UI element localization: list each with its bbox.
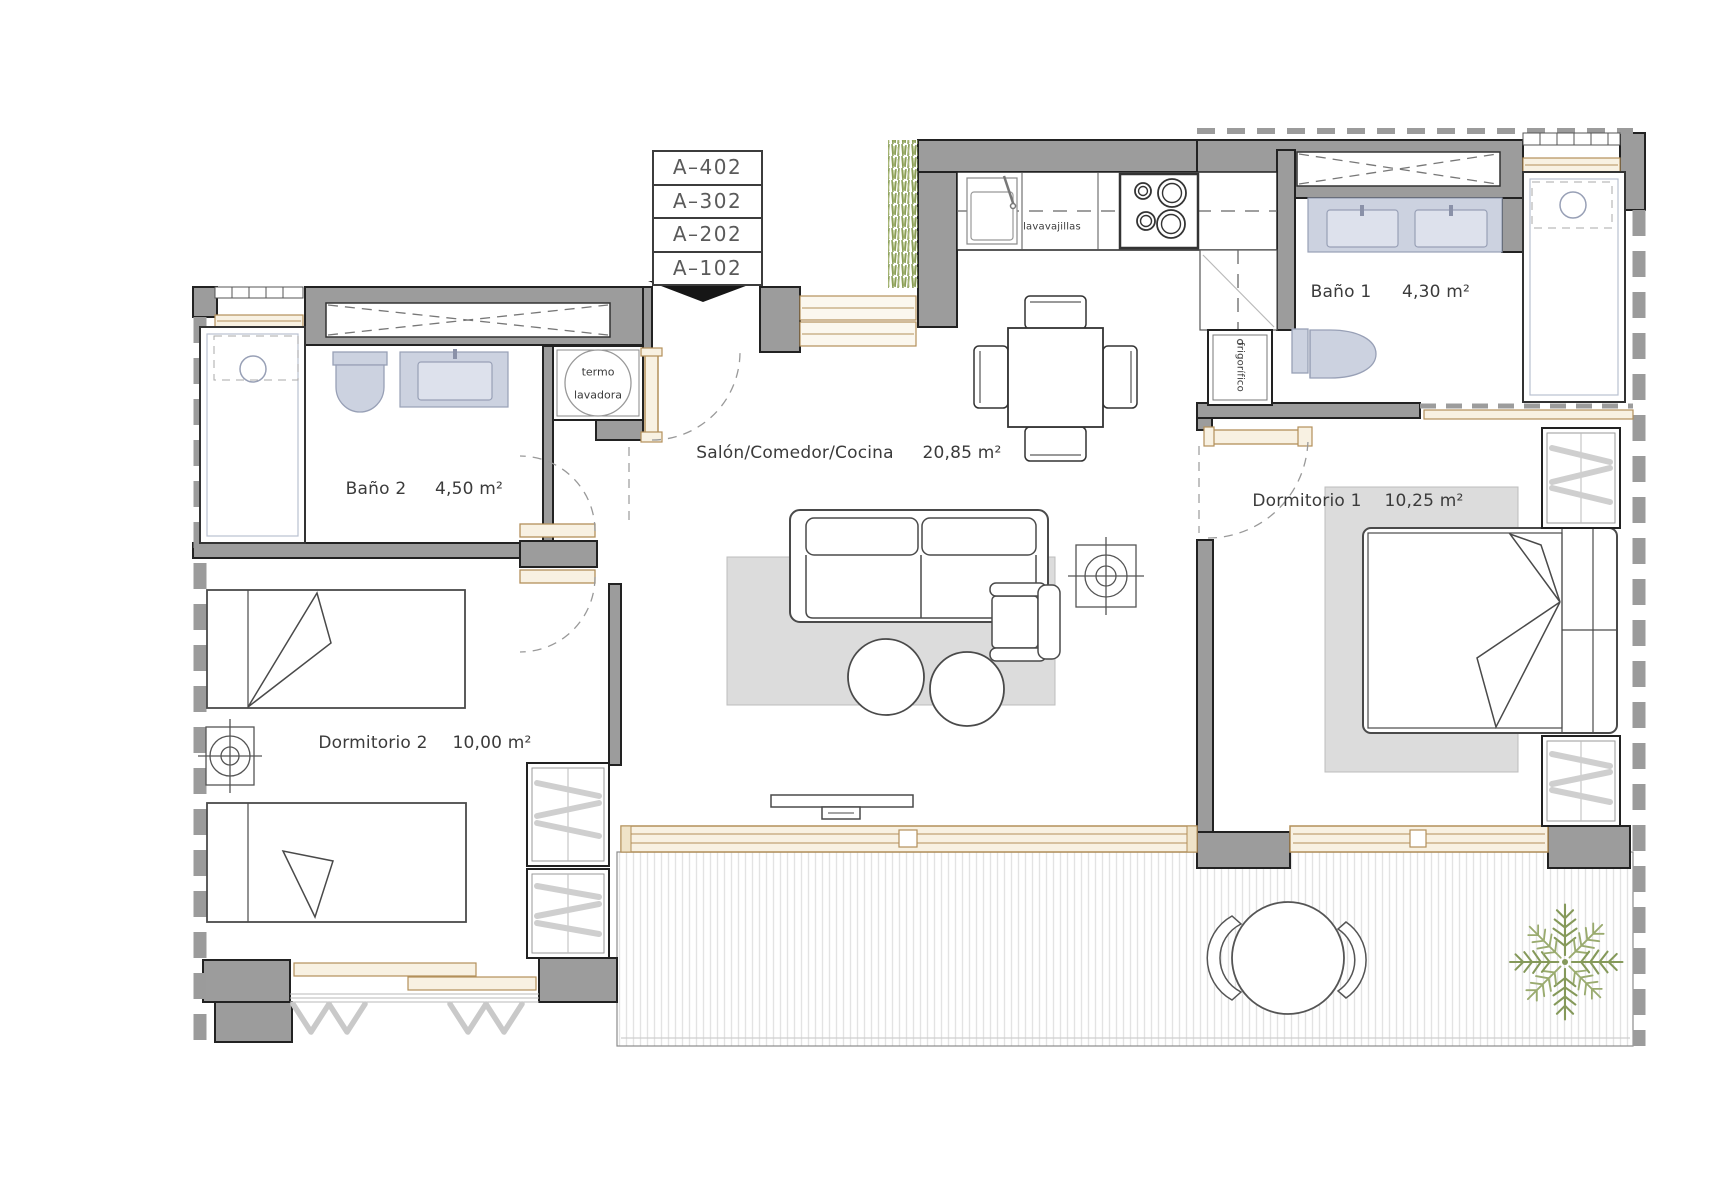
unit-label: A–402 xyxy=(654,152,761,184)
bano2-label: Baño 2 xyxy=(346,479,407,499)
salon-area: 20,85 m² xyxy=(922,443,1001,463)
dormitorio2-wardrobes xyxy=(527,763,609,958)
unit-label: A–302 xyxy=(654,184,761,218)
water-heater-label: termo xyxy=(582,366,615,379)
bathroom1-shower xyxy=(1523,172,1625,402)
terrace-sliding-doors xyxy=(621,826,1548,852)
water-heater-closet xyxy=(553,346,643,420)
dining-set xyxy=(974,296,1137,461)
dormitorio1-bed xyxy=(1363,528,1617,733)
bathroom2-shower xyxy=(200,327,305,543)
washer-label: lavadora xyxy=(574,389,622,402)
salon-label: Salón/Comedor/Cocina xyxy=(696,443,894,463)
dormitorio2-ceiling-symbol xyxy=(198,719,262,793)
dormitorio2-area: 10,00 m² xyxy=(452,733,531,753)
cooktop xyxy=(1120,174,1198,248)
kitchen-sink xyxy=(967,176,1017,244)
fridge-label: frigorífico xyxy=(1235,342,1246,392)
bano2-area: 4,50 m² xyxy=(435,479,503,499)
floor-plan: A–402 A–302 A–202 A–102 Salón/Comedor/Co… xyxy=(0,0,1722,1200)
hedge-plant xyxy=(888,140,918,288)
terrace-table xyxy=(1232,902,1344,1014)
tv-unit xyxy=(771,795,913,819)
bathroom1-toilet xyxy=(1292,329,1376,378)
salon-ceiling-symbol xyxy=(1068,537,1144,615)
floor-plan-drawing xyxy=(0,0,1722,1200)
bathroom2-toilet xyxy=(333,352,387,412)
dormitorio1-area: 10,25 m² xyxy=(1384,491,1463,511)
bathroom1-vanity xyxy=(1308,198,1502,252)
dormitorio1-label: Dormitorio 1 xyxy=(1252,491,1361,511)
bano1-label: Baño 1 xyxy=(1311,282,1372,302)
dormitorio2-label: Dormitorio 2 xyxy=(318,733,427,753)
terrace-deck xyxy=(617,852,1633,1046)
dormitorio2-window xyxy=(290,963,539,1032)
unit-label: A–202 xyxy=(654,217,761,251)
bano1-area: 4,30 m² xyxy=(1402,282,1470,302)
unit-label-stack: A–402 A–302 A–202 A–102 xyxy=(652,150,763,286)
bathroom2-vanity xyxy=(400,349,508,407)
unit-label: A–102 xyxy=(654,251,761,285)
armchair xyxy=(990,583,1060,661)
dishwasher-label: lavavajillas xyxy=(1023,222,1081,233)
